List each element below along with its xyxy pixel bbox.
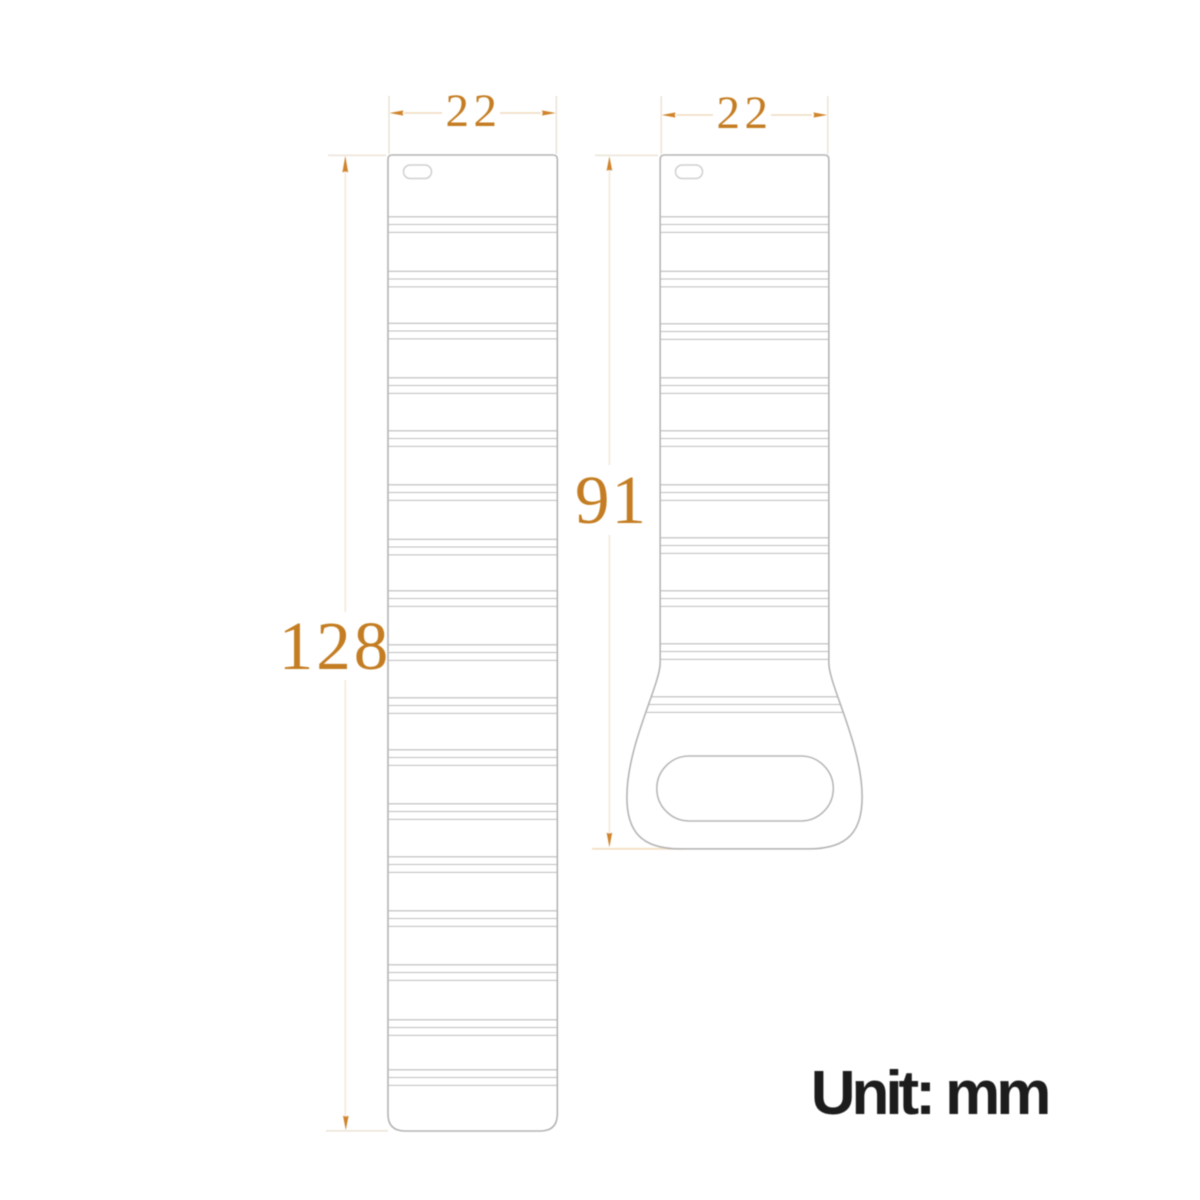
- svg-text:22: 22: [717, 87, 773, 139]
- svg-text:91: 91: [575, 462, 648, 538]
- svg-text:22: 22: [446, 85, 502, 137]
- svg-text:Unit: mm: Unit: mm: [811, 1059, 1049, 1128]
- svg-text:128: 128: [279, 608, 392, 684]
